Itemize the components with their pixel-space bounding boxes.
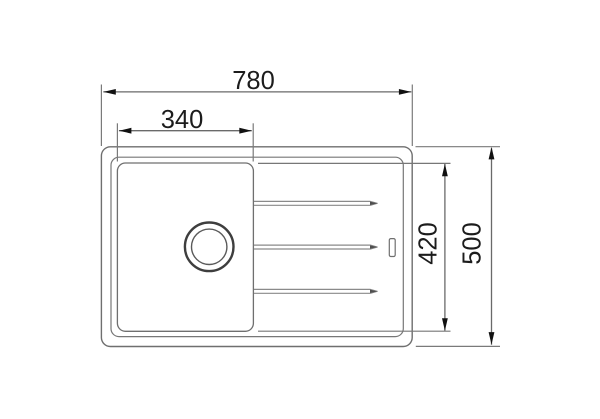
svg-text:780: 780 [232,67,275,95]
svg-text:340: 340 [161,106,204,134]
svg-text:500: 500 [459,222,487,265]
svg-text:420: 420 [415,222,443,265]
